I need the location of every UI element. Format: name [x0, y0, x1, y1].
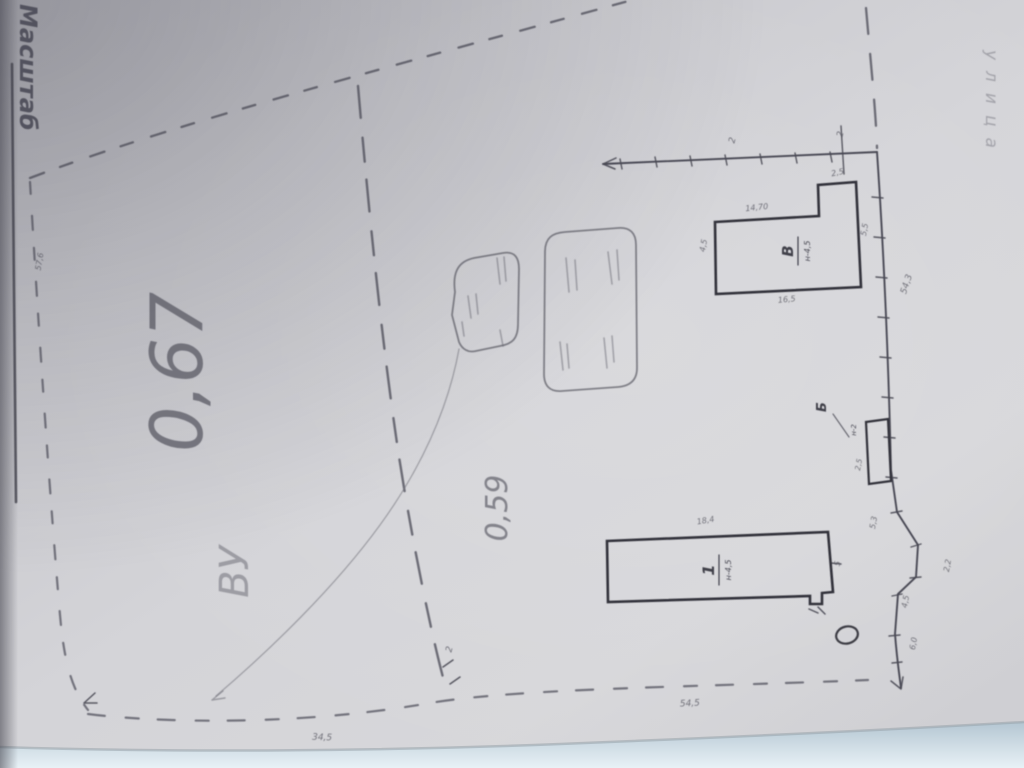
photo-of-site-plan: Масштаб 0,67 ВУ — [0, 0, 1024, 768]
topleft-vignette — [0, 0, 1024, 768]
site-plan-drawing: Масштаб 0,67 ВУ — [0, 0, 1024, 768]
